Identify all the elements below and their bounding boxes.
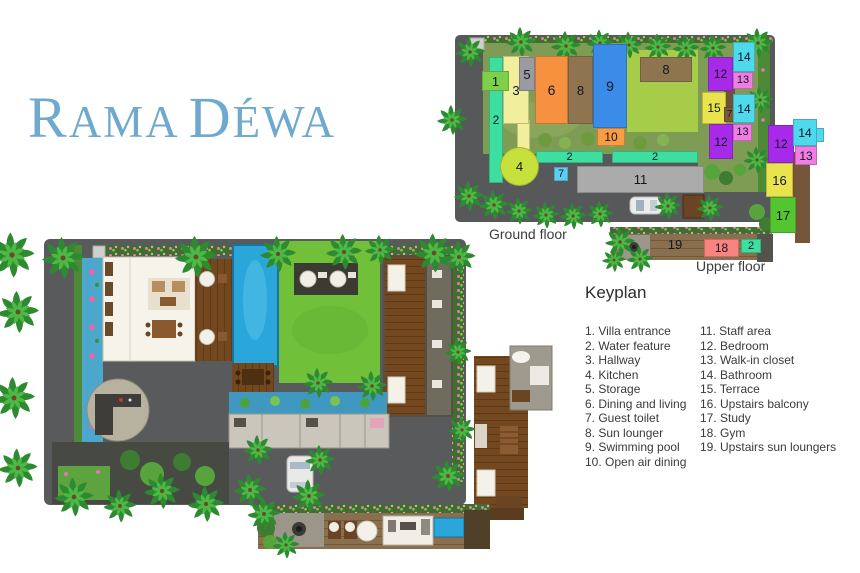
room-block-9: 9 bbox=[593, 44, 627, 128]
room-number: 14 bbox=[798, 127, 811, 139]
room-block-2: 2 bbox=[741, 239, 761, 253]
keyplan-item: 5. Storage bbox=[585, 382, 697, 397]
room-block-14: 14 bbox=[733, 94, 755, 123]
room-block-6: 6 bbox=[535, 56, 568, 124]
room-number: 14 bbox=[737, 51, 750, 63]
keyplan-item: 9. Swimming pool bbox=[585, 440, 697, 455]
room-block-13: 13 bbox=[733, 124, 752, 141]
room-block-12: 12 bbox=[768, 125, 794, 163]
room-number: 13 bbox=[799, 150, 812, 162]
room-number: 8 bbox=[662, 63, 669, 76]
keyplan-item: 6. Dining and living bbox=[585, 397, 697, 412]
room-block bbox=[517, 120, 530, 150]
room-block-13: 13 bbox=[733, 72, 753, 89]
keyplan-item: 11. Staff area bbox=[700, 324, 836, 339]
room-number: 18 bbox=[715, 242, 728, 254]
room-number: 17 bbox=[776, 209, 790, 222]
room-block-12: 12 bbox=[708, 57, 733, 91]
upper-floor-label: Upper floor bbox=[696, 258, 765, 274]
room-block-10: 10 bbox=[597, 128, 625, 146]
room-number: 12 bbox=[714, 136, 727, 148]
keyplan-item: 3. Hallway bbox=[585, 353, 697, 368]
room-number: 11 bbox=[634, 173, 648, 186]
room-number: 2 bbox=[748, 241, 754, 252]
page: RAMADÉWA 2315689108121413157141312227114… bbox=[0, 0, 860, 573]
room-block-14: 14 bbox=[733, 42, 755, 72]
room-number: 13 bbox=[736, 127, 748, 138]
room-block-18: 18 bbox=[704, 239, 739, 257]
keyplan-item: 7. Guest toilet bbox=[585, 411, 697, 426]
room-number: 10 bbox=[604, 131, 617, 143]
room-number: 13 bbox=[737, 75, 749, 86]
keyplan-item: 2. Water feature bbox=[585, 339, 697, 354]
room-number: 5 bbox=[523, 68, 530, 81]
keyplan-item: 12. Bedroom bbox=[700, 339, 836, 354]
room-number: 7 bbox=[558, 169, 564, 180]
room-number: 2 bbox=[566, 152, 572, 163]
room-number: 2 bbox=[493, 114, 500, 126]
room-number: 8 bbox=[577, 84, 584, 97]
room-number: 12 bbox=[714, 68, 727, 80]
room-block-19: 19 bbox=[652, 233, 698, 256]
room-block-7: 7 bbox=[554, 167, 568, 181]
room-number: 15 bbox=[707, 102, 720, 114]
keyplan-column-1: 1. Villa entrance2. Water feature3. Hall… bbox=[585, 324, 697, 469]
room-block-2: 2 bbox=[612, 151, 698, 163]
keyplan: Keyplan 1. Villa entrance2. Water featur… bbox=[585, 283, 836, 469]
keyplan-item: 14. Bathroom bbox=[700, 368, 836, 383]
room-block-13: 13 bbox=[795, 146, 817, 165]
keyplan-item: 8. Sun lounger bbox=[585, 426, 697, 441]
room-number: 7 bbox=[727, 110, 733, 120]
room-block-5: 5 bbox=[519, 57, 535, 91]
room-number: 19 bbox=[668, 238, 682, 251]
keyplan-title: Keyplan bbox=[585, 283, 836, 303]
room-block-2: 2 bbox=[536, 151, 603, 163]
room-number: 16 bbox=[772, 174, 786, 187]
keyplan-item: 15. Terrace bbox=[700, 382, 836, 397]
keyplan-item: 17. Study bbox=[700, 411, 836, 426]
ground-floor-label: Ground floor bbox=[489, 226, 567, 242]
room-block-16: 16 bbox=[766, 163, 793, 197]
room-block-8: 8 bbox=[640, 57, 692, 82]
room-block-14: 14 bbox=[793, 119, 817, 146]
keyplan-item: 16. Upstairs balcony bbox=[700, 397, 836, 412]
keyplan-item: 19. Upstairs sun loungers bbox=[700, 440, 836, 455]
keyplan-item: 13. Walk-in closet bbox=[700, 353, 836, 368]
room-number: 14 bbox=[737, 103, 750, 115]
room-number: 9 bbox=[606, 79, 614, 93]
room-block-1: 1 bbox=[482, 71, 509, 91]
room-block-15: 15 bbox=[702, 92, 726, 124]
room-block-8: 8 bbox=[568, 56, 593, 124]
keyplan-item: 4. Kitchen bbox=[585, 368, 697, 383]
keyplan-item: 18. Gym bbox=[700, 426, 836, 441]
room-number: 6 bbox=[548, 83, 556, 97]
room-number: 1 bbox=[492, 75, 499, 88]
room-block-4: 4 bbox=[500, 147, 539, 186]
room-block-12: 12 bbox=[709, 124, 733, 159]
room-number: 2 bbox=[652, 152, 658, 163]
room-block-11: 11 bbox=[577, 166, 704, 193]
keyplan-columns: 1. Villa entrance2. Water feature3. Hall… bbox=[585, 324, 836, 469]
room-block-17: 17 bbox=[770, 197, 796, 233]
keyplan-item: 10. Open air dining bbox=[585, 455, 697, 470]
keyplan-item: 1. Villa entrance bbox=[585, 324, 697, 339]
room-number: 4 bbox=[516, 160, 523, 173]
room-number: 12 bbox=[774, 138, 787, 150]
keyplan-column-2: 11. Staff area12. Bedroom13. Walk-in clo… bbox=[700, 324, 836, 469]
